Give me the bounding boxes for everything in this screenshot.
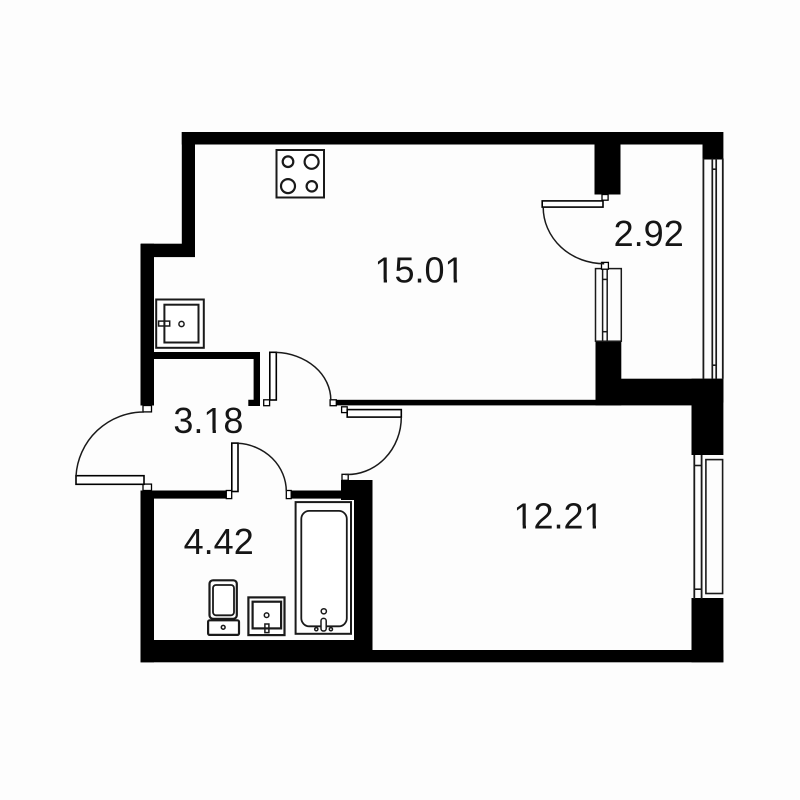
svg-text:4.42: 4.42 (184, 521, 254, 562)
svg-text:12.21: 12.21 (513, 496, 603, 537)
svg-text:2.92: 2.92 (614, 213, 684, 254)
svg-text:15.01: 15.01 (374, 250, 464, 291)
svg-text:3.18: 3.18 (173, 400, 243, 441)
